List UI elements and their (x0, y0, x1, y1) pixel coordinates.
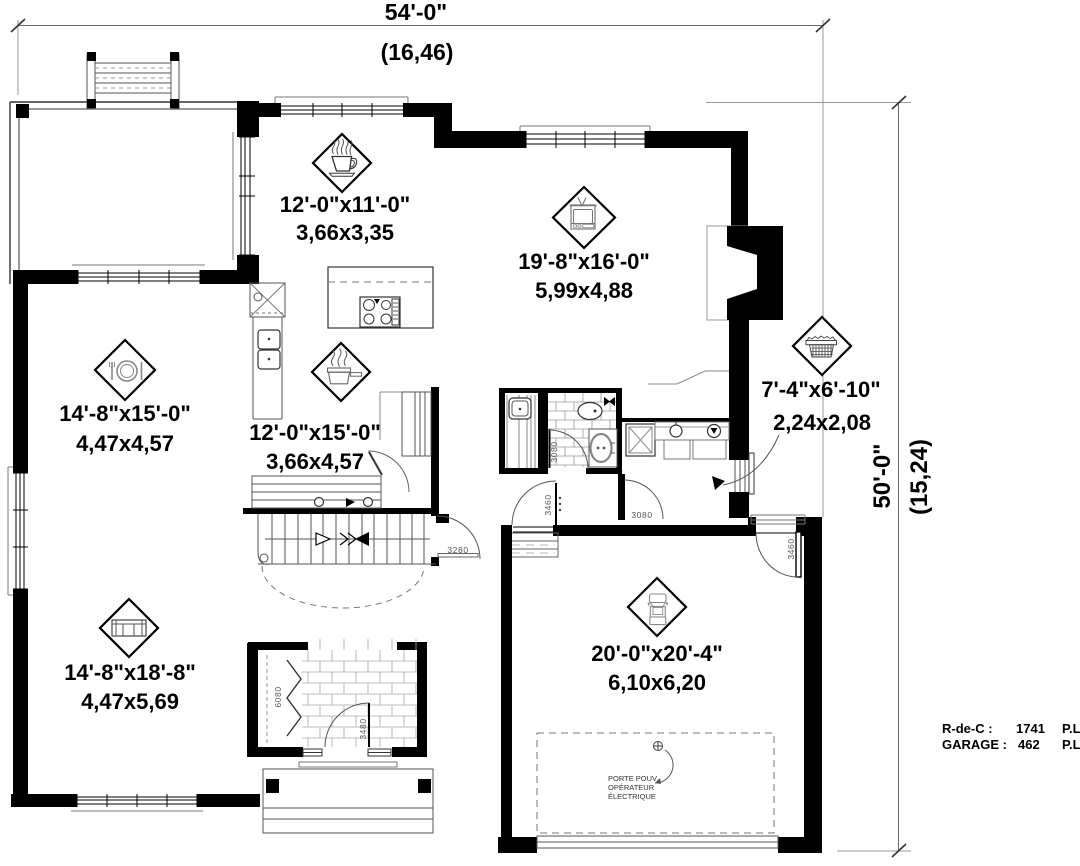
svg-text:P.L.: P.L. (1062, 737, 1080, 752)
svg-text:12'-0"x15'-0": 12'-0"x15'-0" (249, 420, 381, 445)
svg-text:3,66x4,57: 3,66x4,57 (266, 449, 364, 474)
svg-text:462: 462 (1018, 737, 1040, 752)
svg-text:3460: 3460 (786, 538, 796, 559)
svg-text:P.L.: P.L. (1062, 721, 1080, 736)
svg-text:ÉLECTRIQUE: ÉLECTRIQUE (608, 792, 656, 801)
svg-text:3280: 3280 (447, 545, 468, 555)
svg-text:14'-8"x18'-8": 14'-8"x18'-8" (64, 660, 196, 685)
svg-text:3080: 3080 (631, 510, 652, 520)
svg-text:50'-0": 50'-0" (869, 443, 896, 508)
svg-text:7'-4"x6'-10": 7'-4"x6'-10" (761, 377, 880, 402)
svg-text:2,24x2,08: 2,24x2,08 (773, 410, 871, 435)
svg-text:3460: 3460 (543, 494, 553, 515)
svg-text:14'-8"x15'-0": 14'-8"x15'-0" (59, 401, 191, 426)
svg-text:R-de-C :: R-de-C : (942, 721, 993, 736)
svg-text:PORTE POUV.: PORTE POUV. (608, 774, 658, 783)
svg-text:(16,46): (16,46) (381, 39, 454, 65)
svg-text:5,99x4,88: 5,99x4,88 (535, 278, 633, 303)
svg-text:(15,24): (15,24) (906, 439, 933, 515)
svg-text:1741: 1741 (1016, 721, 1045, 736)
svg-text:3,66x3,35: 3,66x3,35 (296, 220, 394, 245)
svg-text:19'-8"x16'-0": 19'-8"x16'-0" (518, 249, 650, 274)
svg-text:OPÉRATEUR: OPÉRATEUR (608, 783, 655, 792)
svg-text:4,47x4,57: 4,47x4,57 (76, 431, 174, 456)
svg-text:4,47x5,69: 4,47x5,69 (81, 689, 179, 714)
svg-text:3080: 3080 (549, 441, 559, 462)
svg-text:12'-0"x11'-0": 12'-0"x11'-0" (280, 192, 410, 217)
svg-text:GARAGE :: GARAGE : (942, 737, 1007, 752)
svg-text:20'-0"x20'-4": 20'-0"x20'-4" (591, 641, 723, 666)
svg-text:6,10x6,20: 6,10x6,20 (608, 670, 706, 695)
svg-text:6080: 6080 (273, 686, 283, 707)
svg-text:54'-0": 54'-0" (385, 0, 447, 25)
svg-text:3480: 3480 (358, 718, 368, 739)
